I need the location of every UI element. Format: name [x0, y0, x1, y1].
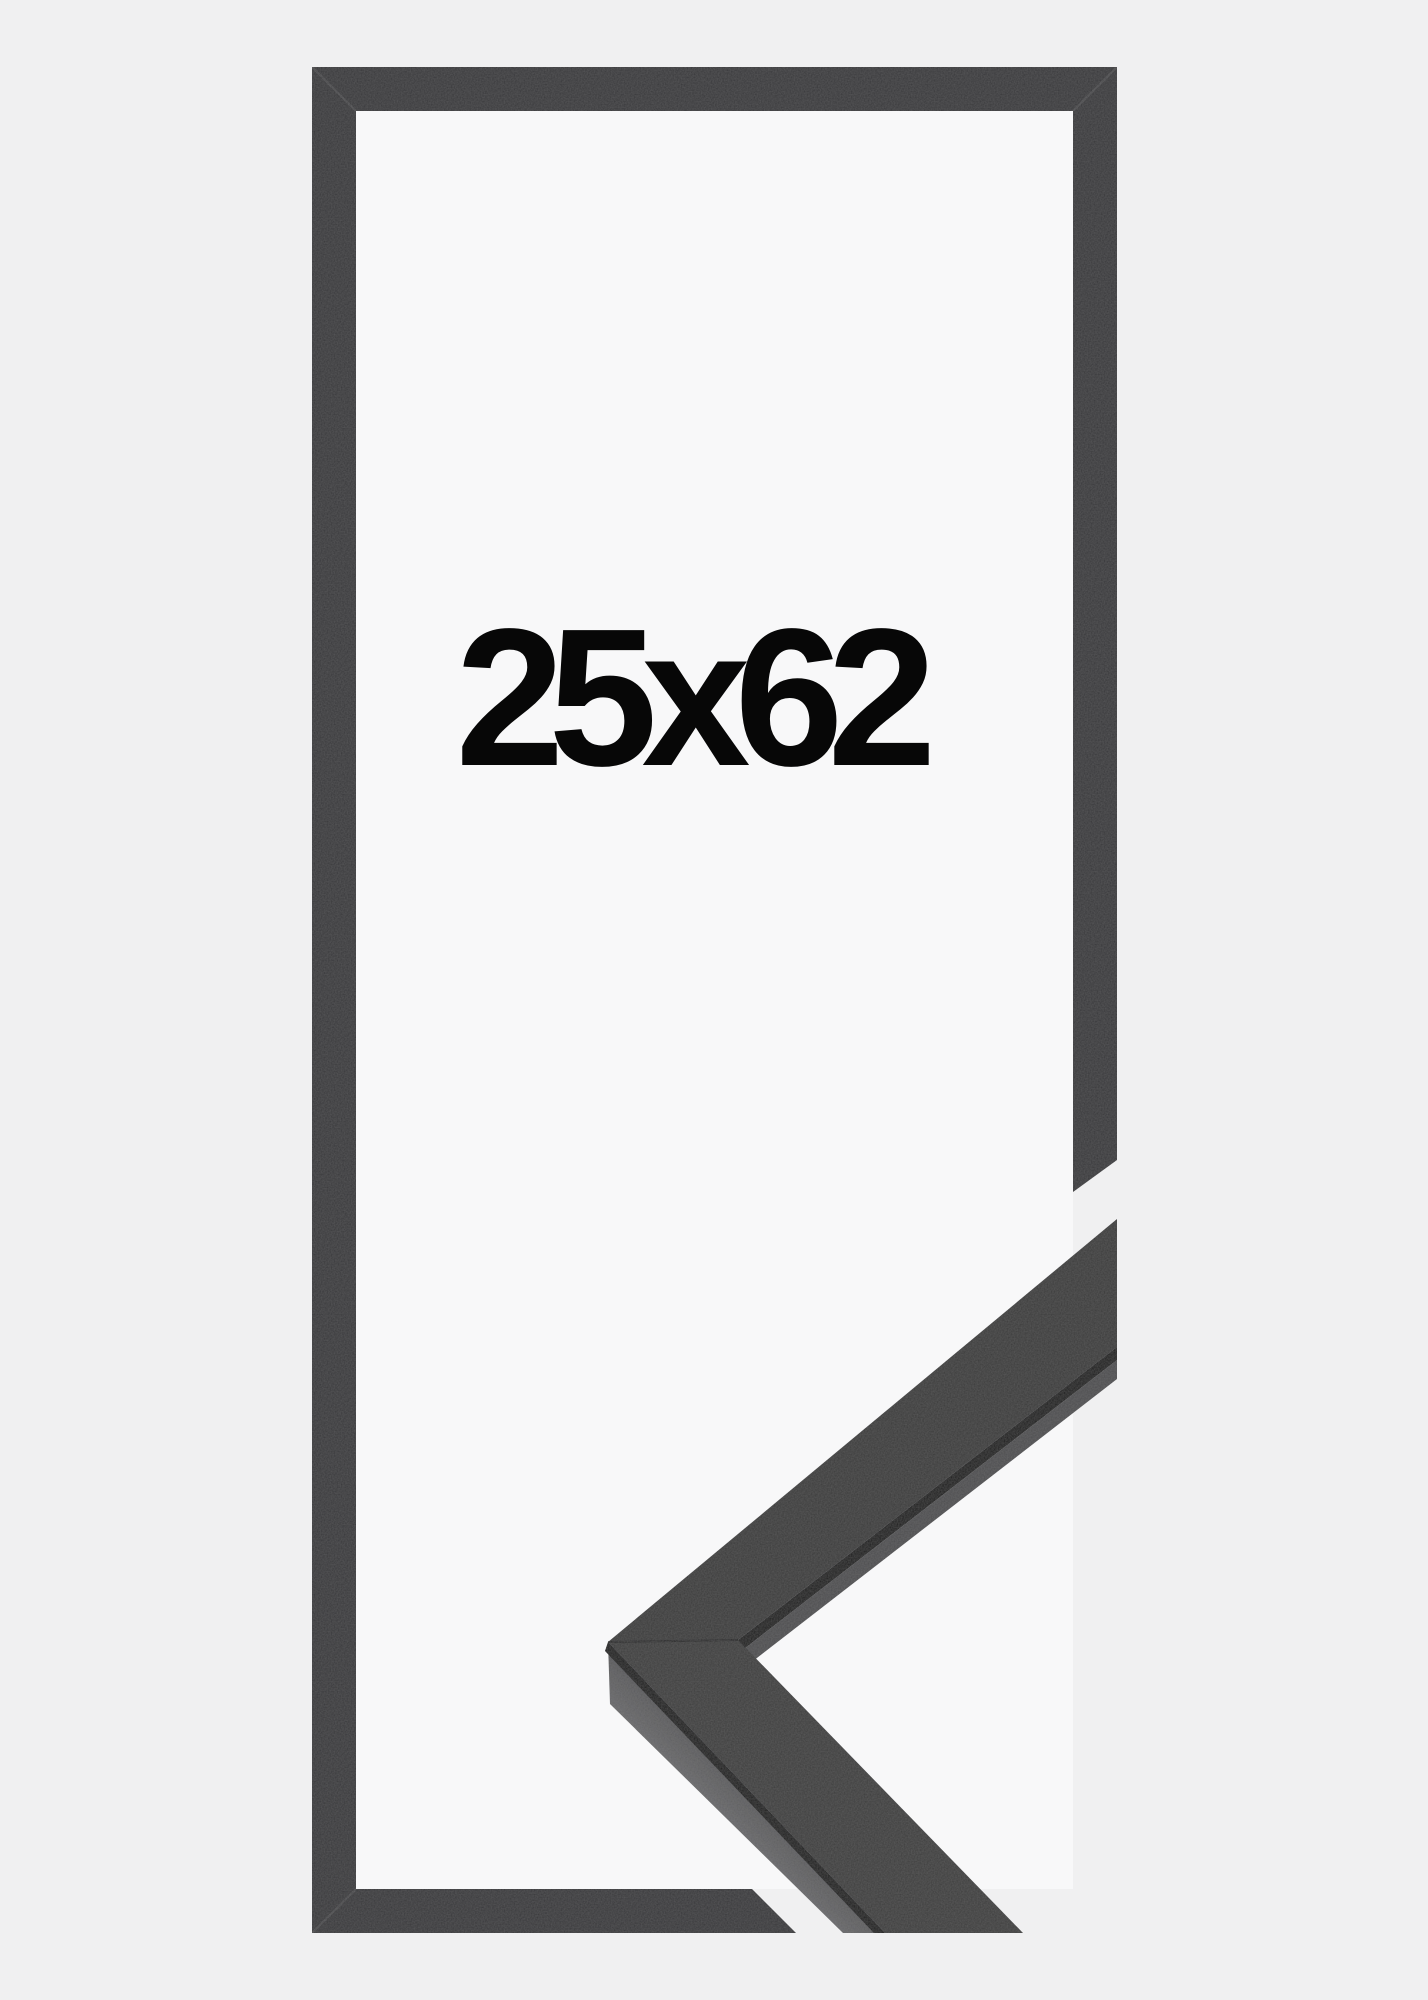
- frame-graphic: 25x62: [0, 0, 1428, 2000]
- frame-size-label: 25x62: [455, 588, 929, 807]
- product-image: 25x62: [0, 0, 1428, 2000]
